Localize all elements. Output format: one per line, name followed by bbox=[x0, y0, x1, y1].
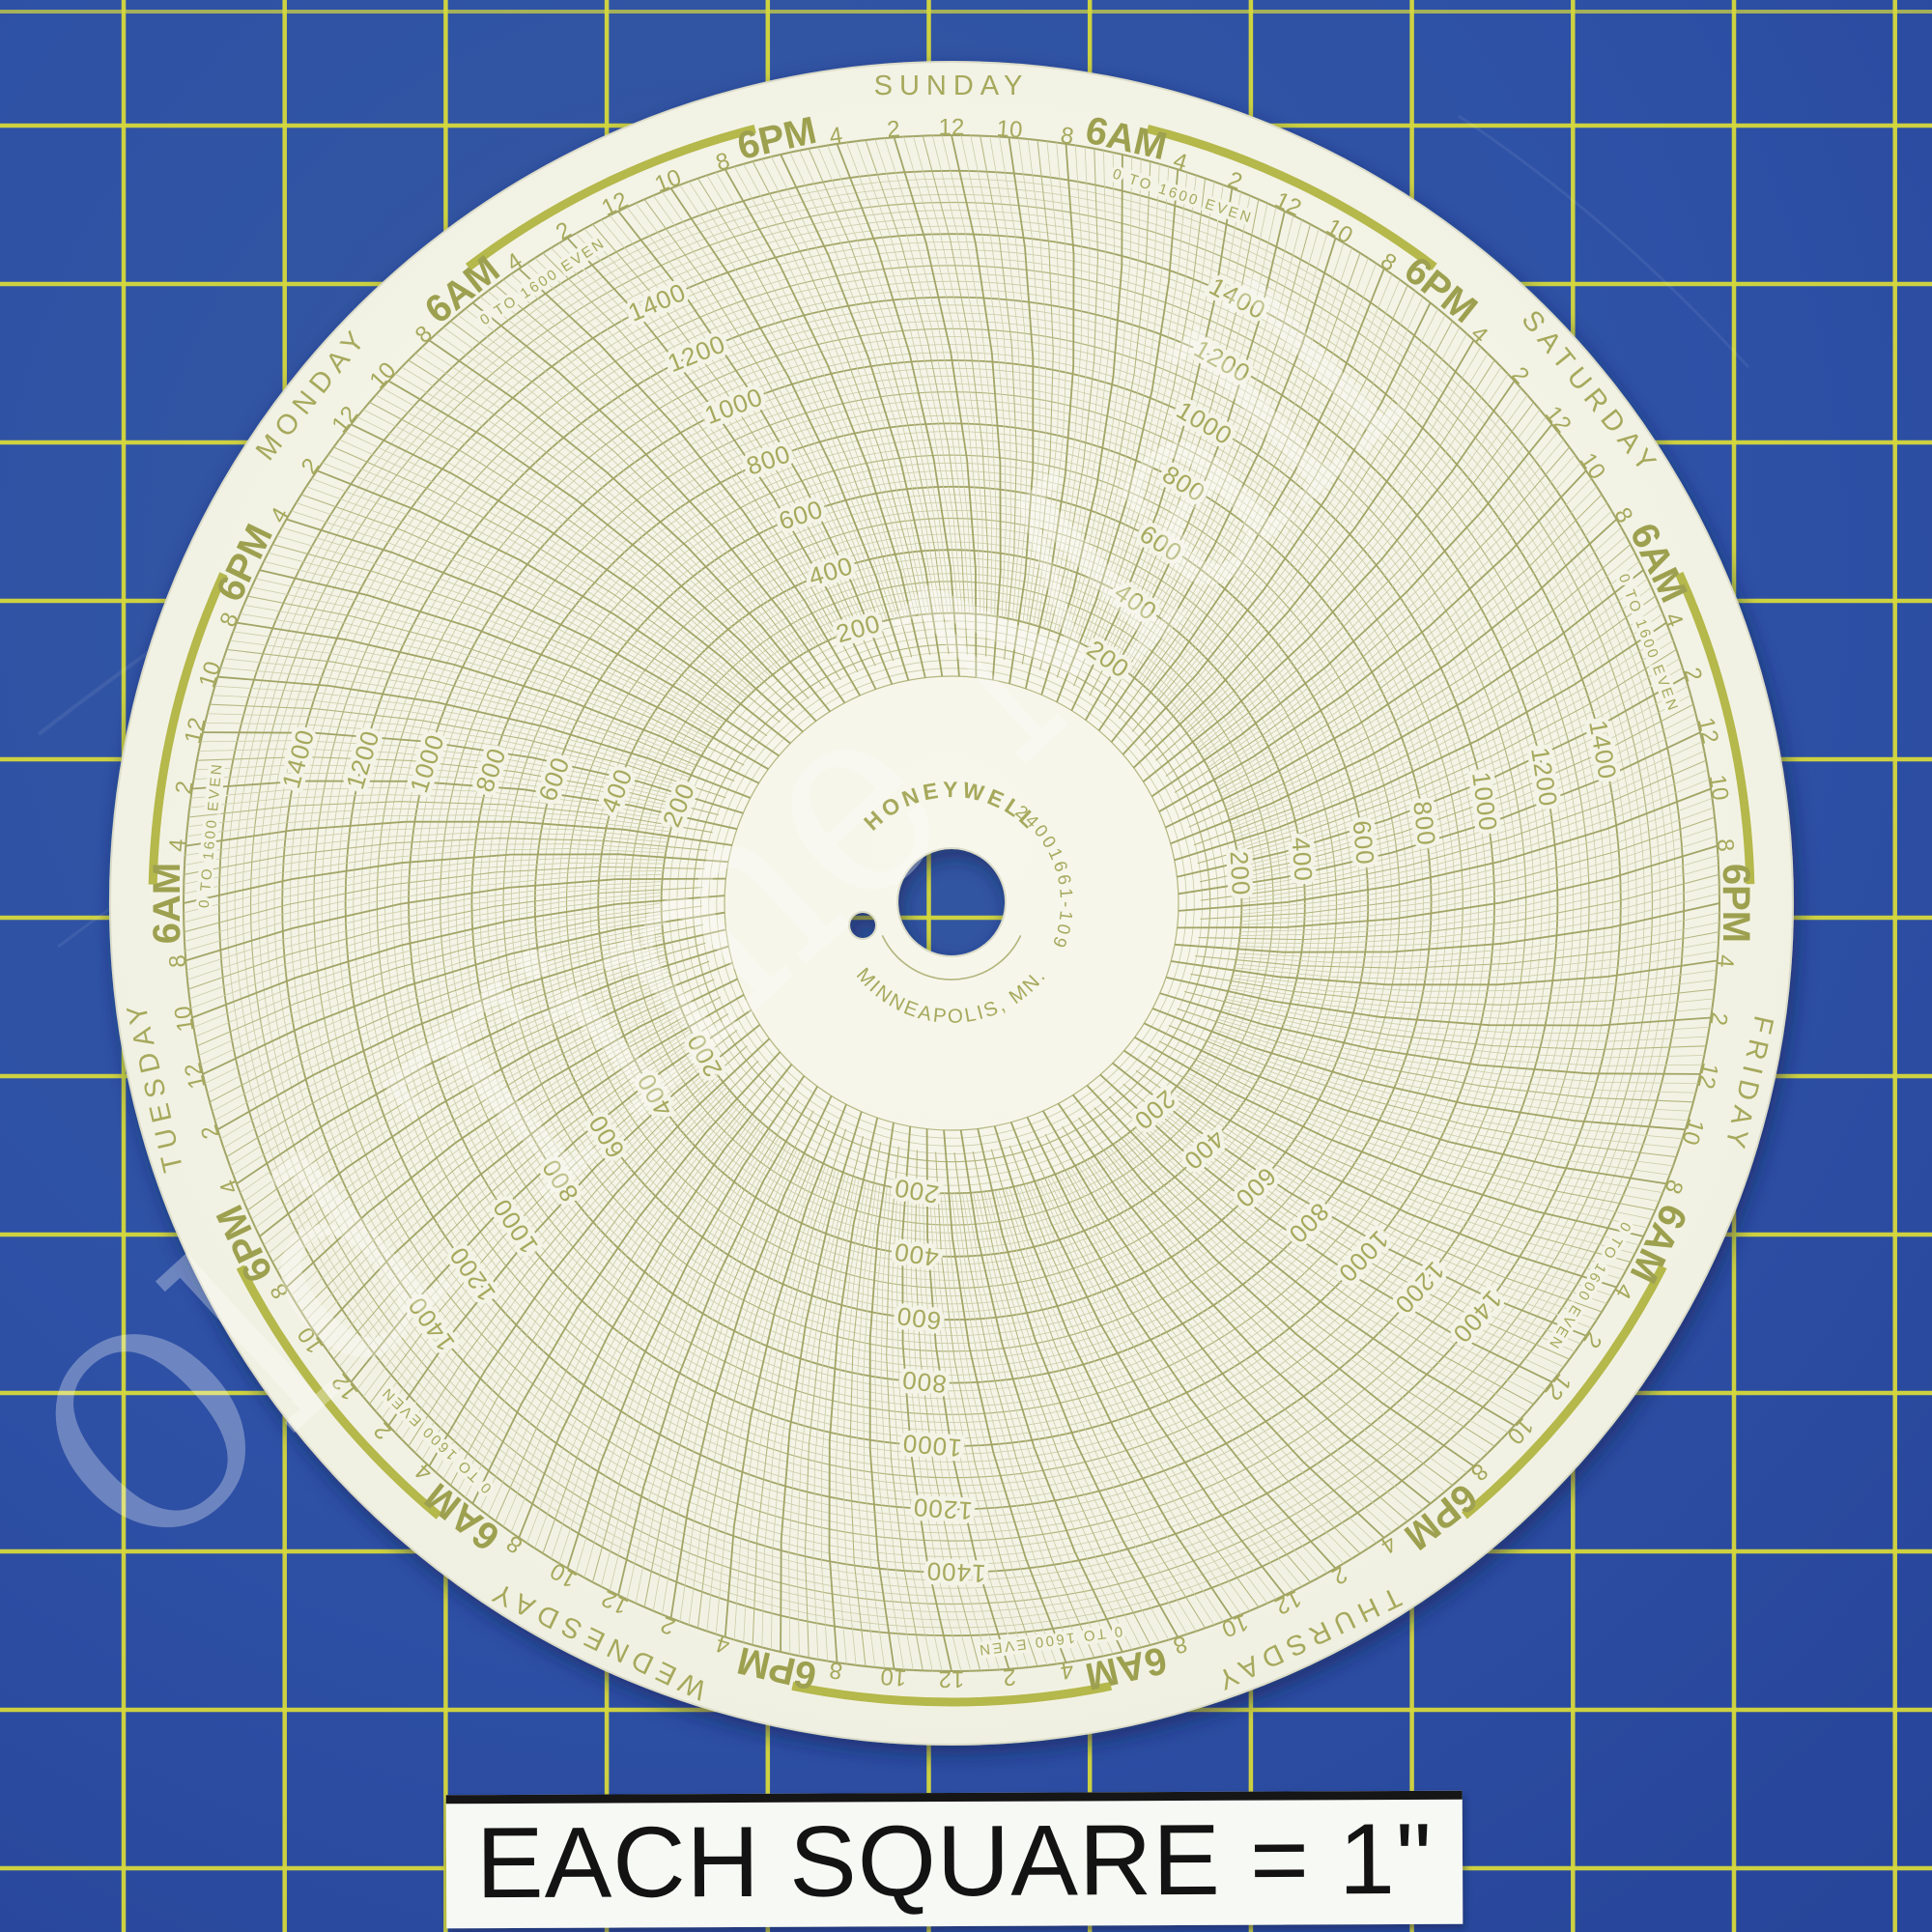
time-label-minor: 2 bbox=[886, 116, 900, 143]
value-label: 1400 bbox=[925, 1556, 986, 1588]
time-label-minor: 10 bbox=[170, 1004, 200, 1033]
time-label-major: 6PM bbox=[1715, 864, 1757, 943]
time-label-minor: 8 bbox=[164, 953, 191, 968]
time-label-minor: 10 bbox=[996, 116, 1024, 144]
time-label-minor: 4 bbox=[1712, 953, 1739, 968]
value-label: 600 bbox=[1348, 819, 1380, 867]
value-label: 800 bbox=[900, 1365, 948, 1399]
time-label-minor: 10 bbox=[1704, 773, 1734, 802]
value-label: 800 bbox=[1407, 800, 1441, 848]
day-label: SUNDAY bbox=[874, 71, 1030, 101]
value-label: 400 bbox=[1286, 836, 1318, 882]
time-label-minor: 10 bbox=[880, 1662, 908, 1690]
time-label-minor: 12 bbox=[939, 1666, 965, 1692]
scale-strip: EACH SQUARE = 1" bbox=[446, 1791, 1463, 1929]
value-label: 600 bbox=[895, 1301, 943, 1336]
time-label-minor: 4 bbox=[164, 838, 191, 852]
value-label: 1000 bbox=[901, 1429, 963, 1463]
scale-strip-label: EACH SQUARE = 1" bbox=[476, 1804, 1433, 1919]
value-label: 200 bbox=[1225, 850, 1256, 896]
photo-stage: SUNDAY121086AM42121086PM42SATURDAY121086… bbox=[0, 0, 1932, 1932]
scene-svg: SUNDAY121086AM42121086PM42SATURDAY121086… bbox=[0, 0, 1932, 1932]
time-label-minor: 8 bbox=[1712, 838, 1739, 852]
value-label: 1200 bbox=[912, 1492, 974, 1525]
time-label-minor: 12 bbox=[939, 115, 965, 141]
time-label-major: 6AM bbox=[146, 863, 188, 944]
time-label-minor: 2 bbox=[1002, 1663, 1016, 1690]
